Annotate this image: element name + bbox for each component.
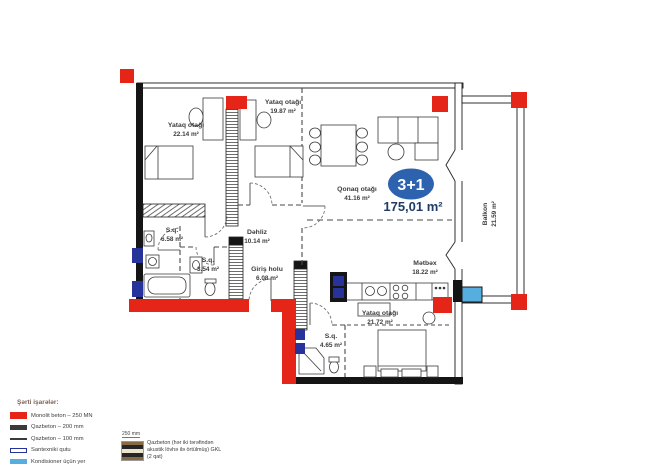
room-area-kitchen: 18.22 m² (412, 269, 438, 276)
room-area-bath-3: 4.65 m² (320, 342, 342, 349)
room-label-bedroom-2: Yataq otağı (265, 99, 301, 106)
room-area-living: 41.16 m² (344, 195, 370, 202)
room-label-living: Qonaq otağı (337, 186, 377, 193)
room-label-hallway: Dəhliz (247, 229, 268, 236)
room-label-bath-2: S.q. (202, 257, 215, 264)
room-area-bath-2: 3.54 m² (197, 266, 219, 273)
room-label-kitchen: Mətbəx (413, 260, 437, 267)
plan-badge: 3+1 175,01 m² (383, 169, 443, 215)
kondisioner-backer (453, 280, 462, 302)
legend-item-monolit: Monolit beton – 250 MN (10, 412, 130, 419)
room-area-hallway: 10.14 m² (244, 238, 270, 245)
wall-section-swatch-icon (121, 441, 144, 461)
room-label-balcony: Balkon (482, 203, 489, 226)
room-area-balcony: 21.59 m² (491, 201, 498, 227)
legend-item-santexnik: Santexniki qutu (10, 447, 130, 454)
kondisioner-swatch-icon (10, 459, 27, 464)
qazbeton-200-swatch-icon (10, 425, 27, 430)
badge-total-area: 175,01 m² (383, 199, 443, 214)
qazbeton-100-swatch-icon (10, 438, 27, 440)
room-label-bath-3: S.q. (325, 333, 338, 340)
legend-item-qazbeton-100: Qazbeton – 100 mm (10, 435, 130, 442)
room-area-bedroom-1: 22.14 m² (173, 131, 199, 138)
note-measure: 250 mm (122, 431, 140, 438)
room-label-bedroom-1: Yataq otağı (168, 122, 204, 129)
floor-plan-page: Yataq otağı 22.14 m² Yataq otağı 19.87 m… (0, 0, 660, 467)
legend: Şərti işarələr: Monolit beton – 250 MN Q… (10, 399, 130, 470)
room-area-bedroom-2: 19.87 m² (270, 108, 296, 115)
room-label-entry: Giriş holu (251, 266, 283, 273)
wall-note: 250 mm Qazbeton (hər iki tərəfindən akus… (121, 422, 231, 461)
room-label-bedroom-3: Yataq otağı (362, 310, 398, 317)
monolit-columns (120, 69, 527, 384)
legend-title: Şərti işarələr: (17, 399, 130, 406)
legend-item-kondisioner: Kondisioner üçün yer (10, 458, 130, 465)
kondisioner-spot (462, 287, 482, 302)
room-label-bath-1: S.q. (166, 227, 179, 234)
room-area-bedroom-3: 21.72 m² (367, 319, 393, 326)
room-area-entry: 6.08 m² (256, 275, 278, 282)
badge-type-label: 3+1 (397, 177, 424, 194)
legend-item-qazbeton-200: Qazbeton – 200 mm (10, 424, 130, 431)
floor-plan: Yataq otağı 22.14 m² Yataq otağı 19.87 m… (0, 0, 660, 467)
note-text: Qazbeton (hər iki tərəfindən akustik löv… (147, 440, 225, 461)
room-area-bath-1: 6.58 m² (161, 236, 183, 243)
santexnik-swatch-icon (10, 448, 27, 453)
monolit-swatch-icon (10, 412, 27, 419)
